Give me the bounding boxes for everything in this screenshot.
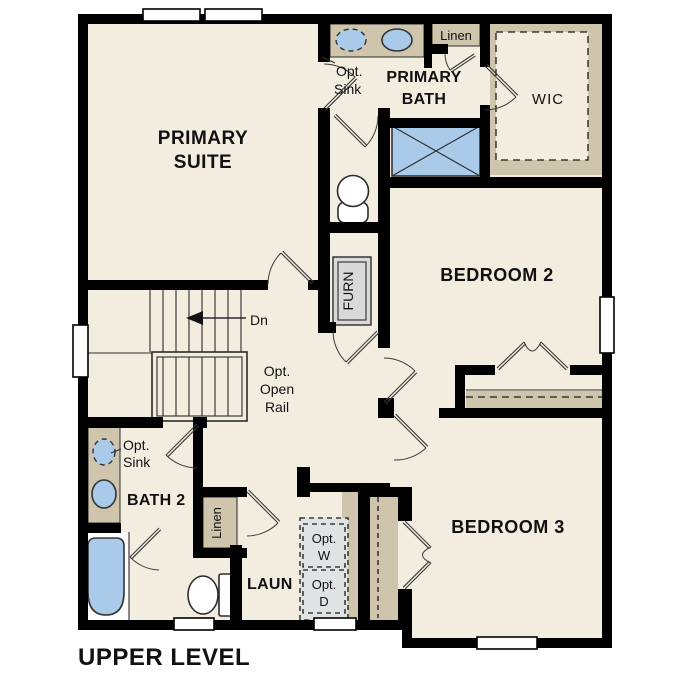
label-opt-dryer: Opt. — [312, 577, 337, 592]
label-opt-sink-bath2: Opt. — [123, 437, 149, 453]
sink-icon — [92, 480, 116, 508]
floor-plan-page: PRIMARY SUITE PRIMARY BATH WIC BEDROOM 2… — [0, 0, 687, 687]
label-opt-sink-primary: Opt. — [336, 63, 362, 79]
wall-segment — [297, 467, 310, 497]
label-opt-open-rail: Rail — [265, 399, 289, 415]
wall-segment — [398, 589, 412, 620]
wall-segment — [378, 177, 612, 188]
window — [143, 9, 200, 21]
label-furnace: FURN — [340, 272, 356, 311]
bathtub-icon — [88, 538, 124, 615]
label-linen-upper: Linen — [440, 28, 472, 43]
label-opt-washer: Opt. — [312, 531, 337, 546]
window — [600, 297, 614, 353]
wall-segment — [398, 497, 412, 521]
label-opt-open-rail: Open — [260, 381, 294, 397]
wall-segment — [88, 417, 163, 428]
wall-segment — [424, 44, 448, 54]
label-opt-sink-bath2: Sink — [123, 454, 151, 470]
page-title: UPPER LEVEL — [78, 644, 250, 671]
wall-segment — [378, 108, 390, 348]
toilet-icon — [338, 176, 369, 207]
wall-segment — [358, 487, 370, 620]
wall-segment — [88, 280, 268, 290]
room-label-primary-suite: SUITE — [174, 152, 232, 173]
room-label-bedroom2: BEDROOM 2 — [440, 265, 554, 285]
bedroom3-closet-shelf — [370, 497, 398, 620]
label-stairs-down: Dn — [250, 312, 268, 328]
room-label-laundry: LAUN — [247, 576, 293, 593]
room-label-bedroom3: BEDROOM 3 — [451, 517, 565, 537]
wall-segment — [308, 280, 330, 290]
room-label-primary-bath: PRIMARY — [386, 69, 461, 86]
window — [314, 618, 356, 630]
wall-segment — [480, 105, 490, 177]
floor-plan-drawing: PRIMARY SUITE PRIMARY BATH WIC BEDROOM 2… — [0, 0, 687, 687]
wall-segment — [237, 487, 247, 497]
window — [174, 618, 214, 630]
room-label-wic: WIC — [532, 91, 564, 108]
wall-segment — [480, 14, 490, 67]
wall-segment — [88, 523, 121, 533]
label-opt-open-rail: Opt. — [264, 363, 290, 379]
wall-segment — [439, 408, 612, 418]
wall-segment — [318, 108, 330, 333]
label-opt-dryer: D — [319, 594, 328, 609]
label-linen-lower: Linen — [209, 507, 224, 539]
wall-segment — [78, 14, 88, 630]
bedroom2-closet-shelf — [466, 391, 602, 408]
wall-segment — [78, 620, 412, 630]
wall-segment — [390, 118, 482, 128]
toilet-icon — [188, 576, 218, 614]
wall-segment — [318, 14, 330, 62]
label-opt-sink-primary: Sink — [334, 81, 362, 97]
wall-segment — [424, 54, 432, 68]
wall-segment — [378, 398, 394, 418]
wall-segment — [570, 365, 612, 375]
optional-sink-icon — [336, 29, 366, 51]
sink-icon — [382, 29, 412, 51]
optional-sink-icon — [93, 439, 115, 465]
room-label-primary-bath: BATH — [402, 91, 446, 108]
window — [477, 637, 537, 649]
room-label-primary-suite: PRIMARY — [158, 128, 248, 149]
window — [205, 9, 262, 21]
wall-segment — [230, 545, 242, 620]
window — [73, 325, 88, 377]
room-label-bath2: BATH 2 — [127, 492, 185, 509]
label-opt-washer: W — [318, 548, 331, 563]
